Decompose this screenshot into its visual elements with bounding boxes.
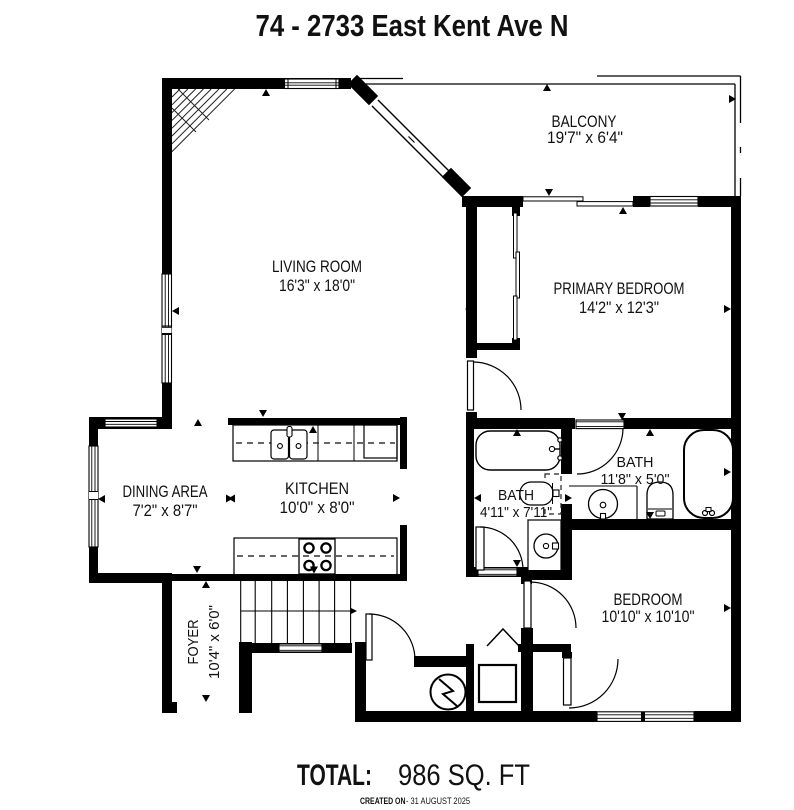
svg-text:BATH: BATH [498, 487, 534, 504]
svg-text:LIVING ROOM: LIVING ROOM [272, 258, 362, 276]
svg-text:10'10" x 10'10": 10'10" x 10'10" [602, 608, 695, 626]
svg-text:BEDROOM: BEDROOM [614, 591, 683, 609]
svg-text:74 - 2733 East Kent Ave N: 74 - 2733 East Kent Ave N [256, 8, 569, 43]
svg-text:10'4" x 6'0": 10'4" x 6'0" [207, 605, 223, 679]
svg-text:11'8" x 5'0": 11'8" x 5'0" [601, 471, 670, 488]
svg-text:FOYER: FOYER [186, 620, 202, 665]
svg-text:PRIMARY BEDROOM: PRIMARY BEDROOM [554, 280, 685, 298]
svg-text:TOTAL:: TOTAL: [297, 759, 372, 792]
svg-text:10'0" x 8'0": 10'0" x 8'0" [280, 499, 355, 517]
svg-text:KITCHEN: KITCHEN [285, 480, 349, 498]
svg-text:7'2" x 8'7": 7'2" x 8'7" [133, 502, 198, 520]
svg-text:DINING AREA: DINING AREA [123, 483, 208, 501]
svg-text:CREATED ON: CREATED ON [360, 796, 406, 807]
svg-text:4'11" x 7'11": 4'11" x 7'11" [480, 504, 552, 521]
svg-text:- 31 AUGUST 2025: - 31 AUGUST 2025 [406, 796, 470, 807]
svg-text:16'3" x 18'0": 16'3" x 18'0" [279, 277, 355, 295]
svg-text:19'7" x 6'4": 19'7" x 6'4" [547, 129, 623, 147]
svg-text:BATH: BATH [617, 454, 654, 471]
svg-text:986 SQ. FT: 986 SQ. FT [398, 759, 530, 792]
svg-text:14'2" x 12'3": 14'2" x 12'3" [579, 299, 659, 317]
